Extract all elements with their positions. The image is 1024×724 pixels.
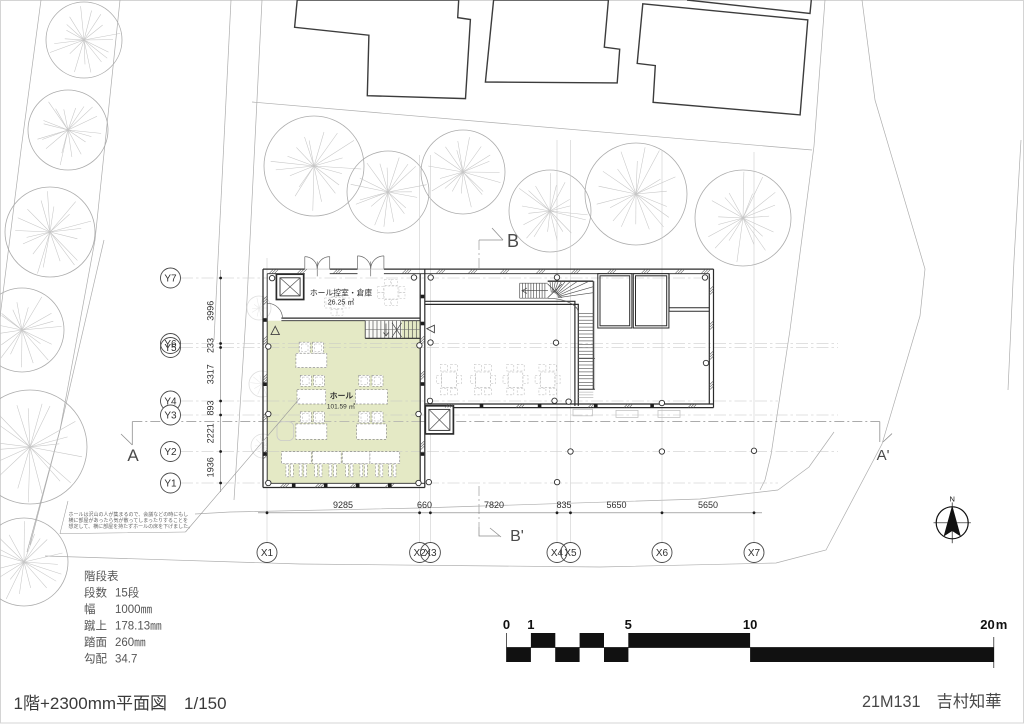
svg-text:21M131 吉村知華: 21M131 吉村知華	[862, 693, 1001, 711]
svg-text:5: 5	[625, 617, 632, 632]
svg-text:660: 660	[417, 500, 432, 510]
svg-text:A: A	[127, 446, 139, 465]
svg-text:N: N	[949, 495, 954, 504]
svg-text:Y7: Y7	[164, 273, 177, 284]
svg-text:26.25 ㎡: 26.25 ㎡	[328, 299, 354, 307]
svg-text:1: 1	[527, 617, 534, 632]
svg-text:X5: X5	[564, 548, 577, 559]
svg-text:段数: 段数	[84, 586, 107, 600]
svg-text:ホール: ホール	[330, 392, 354, 401]
svg-text:Y5: Y5	[164, 343, 177, 354]
svg-text:101.59 ㎡: 101.59 ㎡	[327, 402, 356, 411]
svg-text:蹴上: 蹴上	[84, 619, 107, 633]
svg-text:893: 893	[206, 400, 216, 415]
svg-text:X1: X1	[261, 548, 274, 559]
svg-text:260㎜: 260㎜	[115, 637, 146, 649]
svg-text:Y2: Y2	[164, 447, 177, 458]
svg-text:B': B'	[510, 528, 524, 545]
svg-text:ホール控室・倉庫: ホール控室・倉庫	[310, 288, 373, 298]
svg-text:2221: 2221	[206, 423, 216, 443]
svg-text:20: 20	[980, 617, 994, 632]
svg-text:踏面: 踏面	[84, 635, 107, 649]
svg-text:5650: 5650	[606, 500, 626, 510]
svg-text:15段: 15段	[115, 586, 140, 600]
svg-text:B: B	[507, 231, 519, 251]
svg-text:9285: 9285	[333, 500, 353, 510]
svg-text:m: m	[996, 617, 1008, 632]
svg-text:233: 233	[206, 338, 216, 353]
svg-text:階段表: 階段表	[84, 569, 119, 583]
svg-text:1936: 1936	[206, 457, 216, 477]
svg-text:3317: 3317	[206, 364, 216, 384]
svg-text:X7: X7	[748, 548, 761, 559]
svg-text:835: 835	[556, 500, 571, 510]
svg-text:10: 10	[743, 617, 757, 632]
svg-text:0: 0	[503, 617, 510, 632]
svg-text:178.13㎜: 178.13㎜	[115, 621, 162, 633]
svg-text:勾配: 勾配	[84, 653, 107, 666]
svg-text:1階+2300mm平面図 1/150: 1階+2300mm平面図 1/150	[14, 694, 227, 713]
svg-text:Y1: Y1	[164, 478, 177, 489]
svg-text:ホールは沢山の人が集まるので、会議などの時にもし: ホールは沢山の人が集まるので、会議などの時にもし	[69, 511, 189, 518]
svg-text:Y3: Y3	[164, 410, 177, 421]
svg-text:5650: 5650	[698, 500, 718, 510]
svg-text:横に部屋があったら気が散ってしまったりすることを: 横に部屋があったら気が散ってしまったりすることを	[69, 517, 189, 524]
svg-text:X6: X6	[656, 548, 669, 559]
svg-text:X3: X3	[424, 548, 437, 559]
svg-text:想定して、横に部屋を持たずホールの床を下げました。: 想定して、横に部屋を持たずホールの床を下げました。	[69, 523, 194, 530]
svg-text:34.7: 34.7	[115, 654, 137, 666]
svg-text:幅: 幅	[84, 603, 96, 616]
svg-text:7820: 7820	[484, 500, 504, 510]
svg-text:A': A'	[877, 447, 890, 464]
svg-text:1000㎜: 1000㎜	[115, 604, 153, 616]
svg-text:3996: 3996	[206, 301, 216, 321]
